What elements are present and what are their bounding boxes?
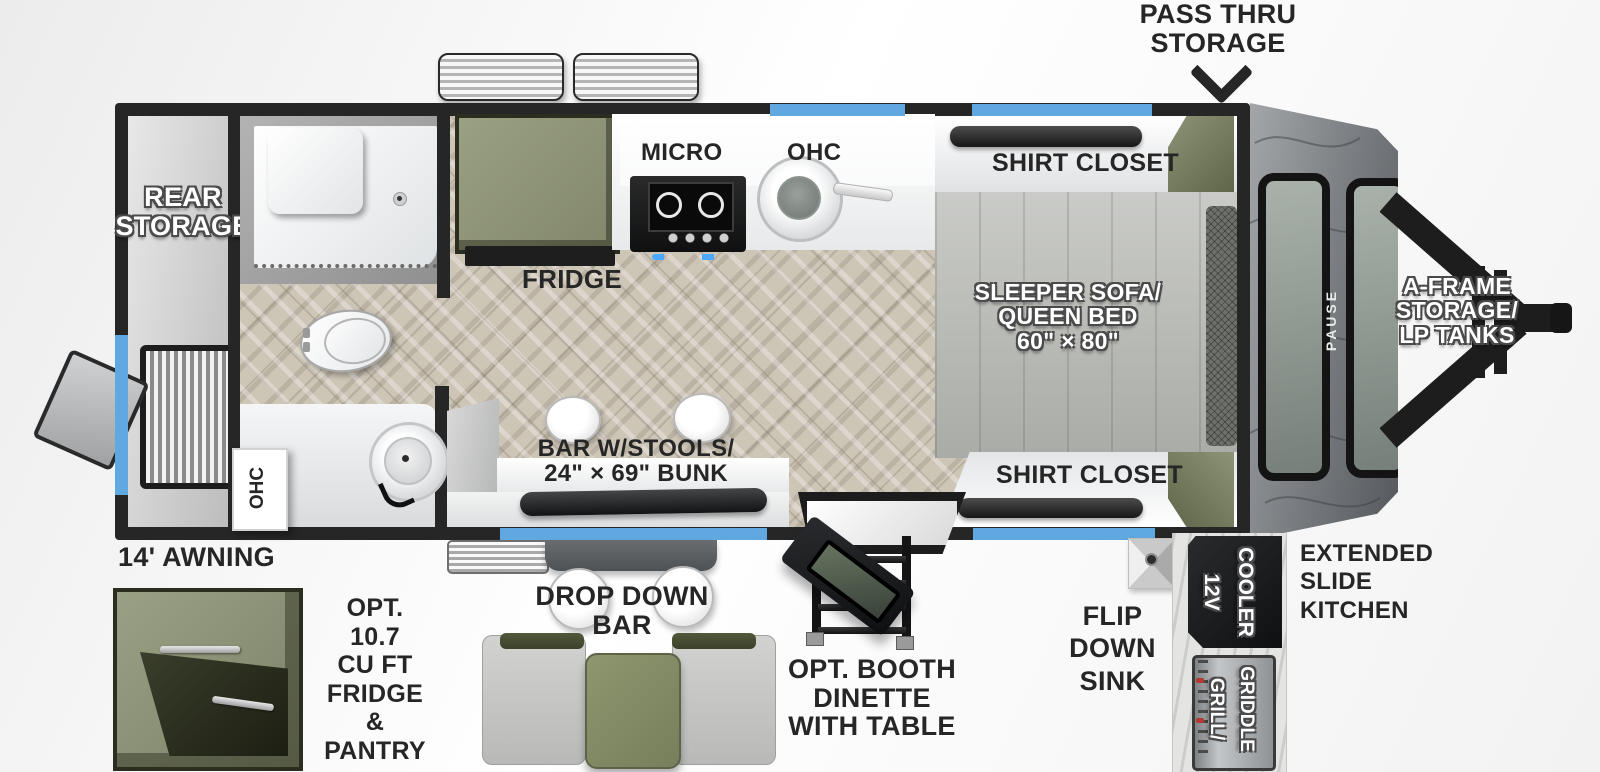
closet-rod bbox=[958, 498, 1143, 518]
shower-seat bbox=[268, 128, 363, 214]
bathroom-wall bbox=[437, 116, 450, 298]
opt-booth-dinette-label: OPT. BOOTH DINETTE WITH TABLE bbox=[772, 655, 972, 741]
griddle-label: GRIDDLE bbox=[1235, 653, 1257, 765]
roof-vent-left bbox=[438, 53, 564, 101]
window-bottom-1 bbox=[500, 528, 767, 540]
cooler-label-12v: 12V bbox=[1199, 537, 1223, 647]
stove-blue-glow bbox=[652, 254, 736, 260]
window-top-2 bbox=[972, 104, 1152, 116]
brand-logo: PAUSE bbox=[1323, 255, 1339, 385]
dinette-bench bbox=[672, 635, 776, 765]
kitchen-ohc-label: OHC bbox=[787, 140, 841, 165]
hitch-coupler bbox=[1550, 303, 1572, 333]
bed-pillows bbox=[1206, 206, 1237, 446]
roof-vent-right bbox=[573, 53, 699, 101]
awning-rail bbox=[447, 540, 549, 574]
rear-storage-slat-door bbox=[140, 345, 234, 489]
burner-icon bbox=[698, 192, 724, 218]
opt-fridge-pantry-label: OPT. 10.7 CU FT FRIDGE & PANTRY bbox=[300, 594, 450, 765]
bar-counter-top bbox=[520, 488, 767, 516]
sleeper-sofa-label: SLEEPER SOFA/ QUEEN BED 60" × 80" bbox=[968, 280, 1168, 353]
closet-rod bbox=[950, 126, 1142, 147]
fridge-label: FRIDGE bbox=[522, 266, 622, 294]
stove-knobs bbox=[666, 232, 732, 245]
grill-label: GRILL/ bbox=[1205, 653, 1227, 765]
burner-icon bbox=[656, 192, 682, 218]
floorplan-diagram: PASS THRU STORAGE REAR STORAGE OHC FRIDG… bbox=[0, 0, 1600, 772]
shirt-closet-top-label: SHIRT CLOSET bbox=[992, 150, 1179, 177]
micro-label: MICRO bbox=[641, 140, 723, 165]
awning-label: 14' AWNING bbox=[118, 543, 275, 572]
rear-ohc-label: OHC bbox=[247, 453, 269, 523]
window-rear-side bbox=[115, 335, 128, 495]
cap-window bbox=[1258, 173, 1330, 481]
shower-curtain bbox=[254, 264, 437, 268]
bar-bunk-label: BAR W/STOOLS/ 24" × 69" BUNK bbox=[536, 436, 736, 487]
dinette-bench bbox=[482, 635, 586, 765]
fridge-box bbox=[455, 114, 620, 254]
rear-storage-label: REAR STORAGE bbox=[108, 183, 258, 240]
shirt-closet-bottom-label: SHIRT CLOSET bbox=[996, 462, 1183, 489]
flip-down-sink-label: FLIP DOWN SINK bbox=[1040, 600, 1185, 697]
drop-down-bar-label: DROP DOWN BAR bbox=[522, 582, 722, 639]
dinette-table bbox=[585, 653, 681, 769]
window-top-1 bbox=[770, 104, 905, 116]
cooler-label-cooler: COOLER bbox=[1233, 537, 1257, 647]
a-frame-label: A-FRAME STORAGE/ LP TANKS bbox=[1372, 274, 1542, 347]
extended-slide-kitchen-label: EXTENDED SLIDE KITCHEN bbox=[1300, 540, 1433, 625]
